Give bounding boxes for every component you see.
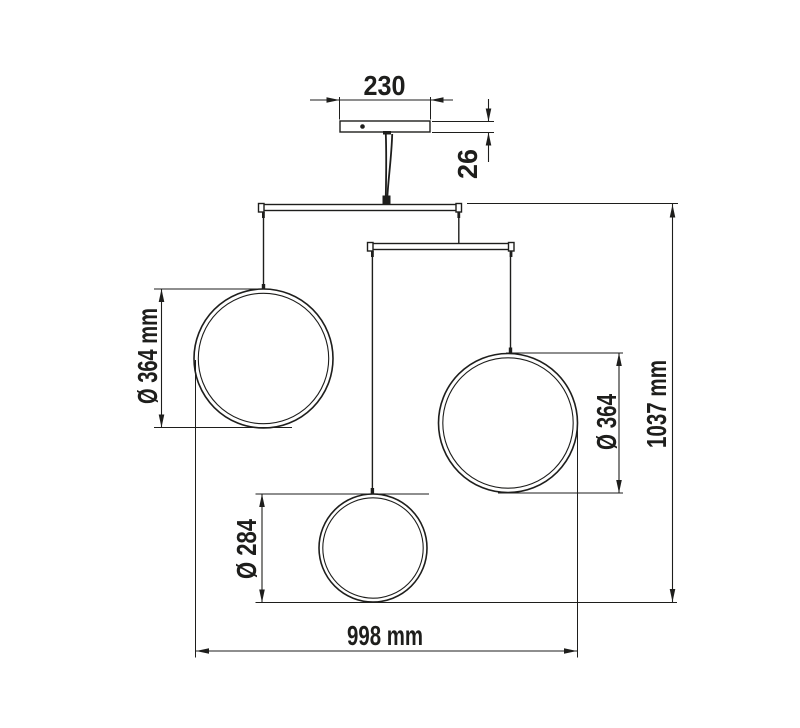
arrowhead xyxy=(259,494,265,507)
ring-bottom-inner xyxy=(323,498,423,598)
arrowhead xyxy=(159,289,165,302)
bar-primary-right-cap xyxy=(456,204,462,213)
bar-secondary-left-cap xyxy=(368,243,374,252)
arrowhead xyxy=(259,590,265,603)
arrowhead xyxy=(564,648,577,654)
bar-primary-body xyxy=(260,205,460,211)
arrowhead xyxy=(327,97,340,102)
arrowhead xyxy=(486,133,492,146)
cable-fitting xyxy=(383,196,391,205)
suspension-cable xyxy=(383,134,393,205)
dimension-right-ring: Ø 364 xyxy=(498,353,623,493)
bar-secondary-left-stub xyxy=(371,251,374,257)
canopy-body xyxy=(340,121,430,132)
ring-bottom-small xyxy=(319,494,427,602)
pendant-lamp-dimension-drawing: 230 26 Ø 364 mm Ø 364 Ø 284 xyxy=(0,0,800,728)
bar-secondary-body xyxy=(369,244,513,250)
suspension-bar-secondary xyxy=(368,243,515,258)
dim-label-overall-height: 1037 mm xyxy=(641,360,672,448)
dimension-overall-height: 1037 mm xyxy=(467,204,678,603)
bar-secondary-right-cap xyxy=(509,243,515,252)
technical-drawing-page: 230 26 Ø 364 mm Ø 364 Ø 284 xyxy=(0,0,800,728)
ring-bottom-outer xyxy=(319,494,427,602)
ring-right-large xyxy=(439,354,578,493)
dim-label-left-ring-diameter: Ø 364 mm xyxy=(132,308,163,404)
ring-left-large xyxy=(194,289,333,428)
dim-label-bottom-ring-diameter: Ø 284 xyxy=(231,519,262,579)
dimension-canopy-height: 26 xyxy=(432,99,494,179)
arrowhead xyxy=(431,97,444,102)
arrowhead xyxy=(486,109,492,122)
ring-left-inner xyxy=(198,293,328,423)
arrowhead xyxy=(670,589,676,602)
bar-secondary-right-stub xyxy=(510,251,513,257)
dim-label-canopy-height: 26 xyxy=(452,149,483,179)
dim-label-overall-width: 998 mm xyxy=(347,620,423,651)
arrowhead xyxy=(670,205,676,218)
dim-label-right-ring-diameter: Ø 364 xyxy=(591,394,622,450)
bar-primary-left-cap xyxy=(259,204,265,213)
dimension-left-ring: Ø 364 mm xyxy=(132,289,292,428)
dimension-bottom-ring: Ø 284 xyxy=(231,494,429,603)
ring-left-outer xyxy=(194,289,333,428)
dimension-overall-width: 998 mm xyxy=(196,360,578,658)
suspension-bar-primary xyxy=(259,204,462,219)
ceiling-canopy xyxy=(340,121,430,135)
arrowhead xyxy=(616,353,622,366)
arrowhead xyxy=(616,480,622,493)
dimension-canopy-width: 230 xyxy=(310,70,453,120)
canopy-screw-dot xyxy=(360,124,365,129)
bottom-ring-connector xyxy=(371,488,374,494)
arrowhead xyxy=(196,648,209,654)
ring-right-inner xyxy=(443,358,573,488)
ring-right-outer xyxy=(439,354,578,493)
dim-label-canopy-width: 230 xyxy=(364,70,406,101)
right-ring-connector xyxy=(509,348,512,354)
canopy-cable-gland xyxy=(383,131,391,135)
cable-strand-right xyxy=(387,134,392,196)
arrowhead xyxy=(159,415,165,428)
